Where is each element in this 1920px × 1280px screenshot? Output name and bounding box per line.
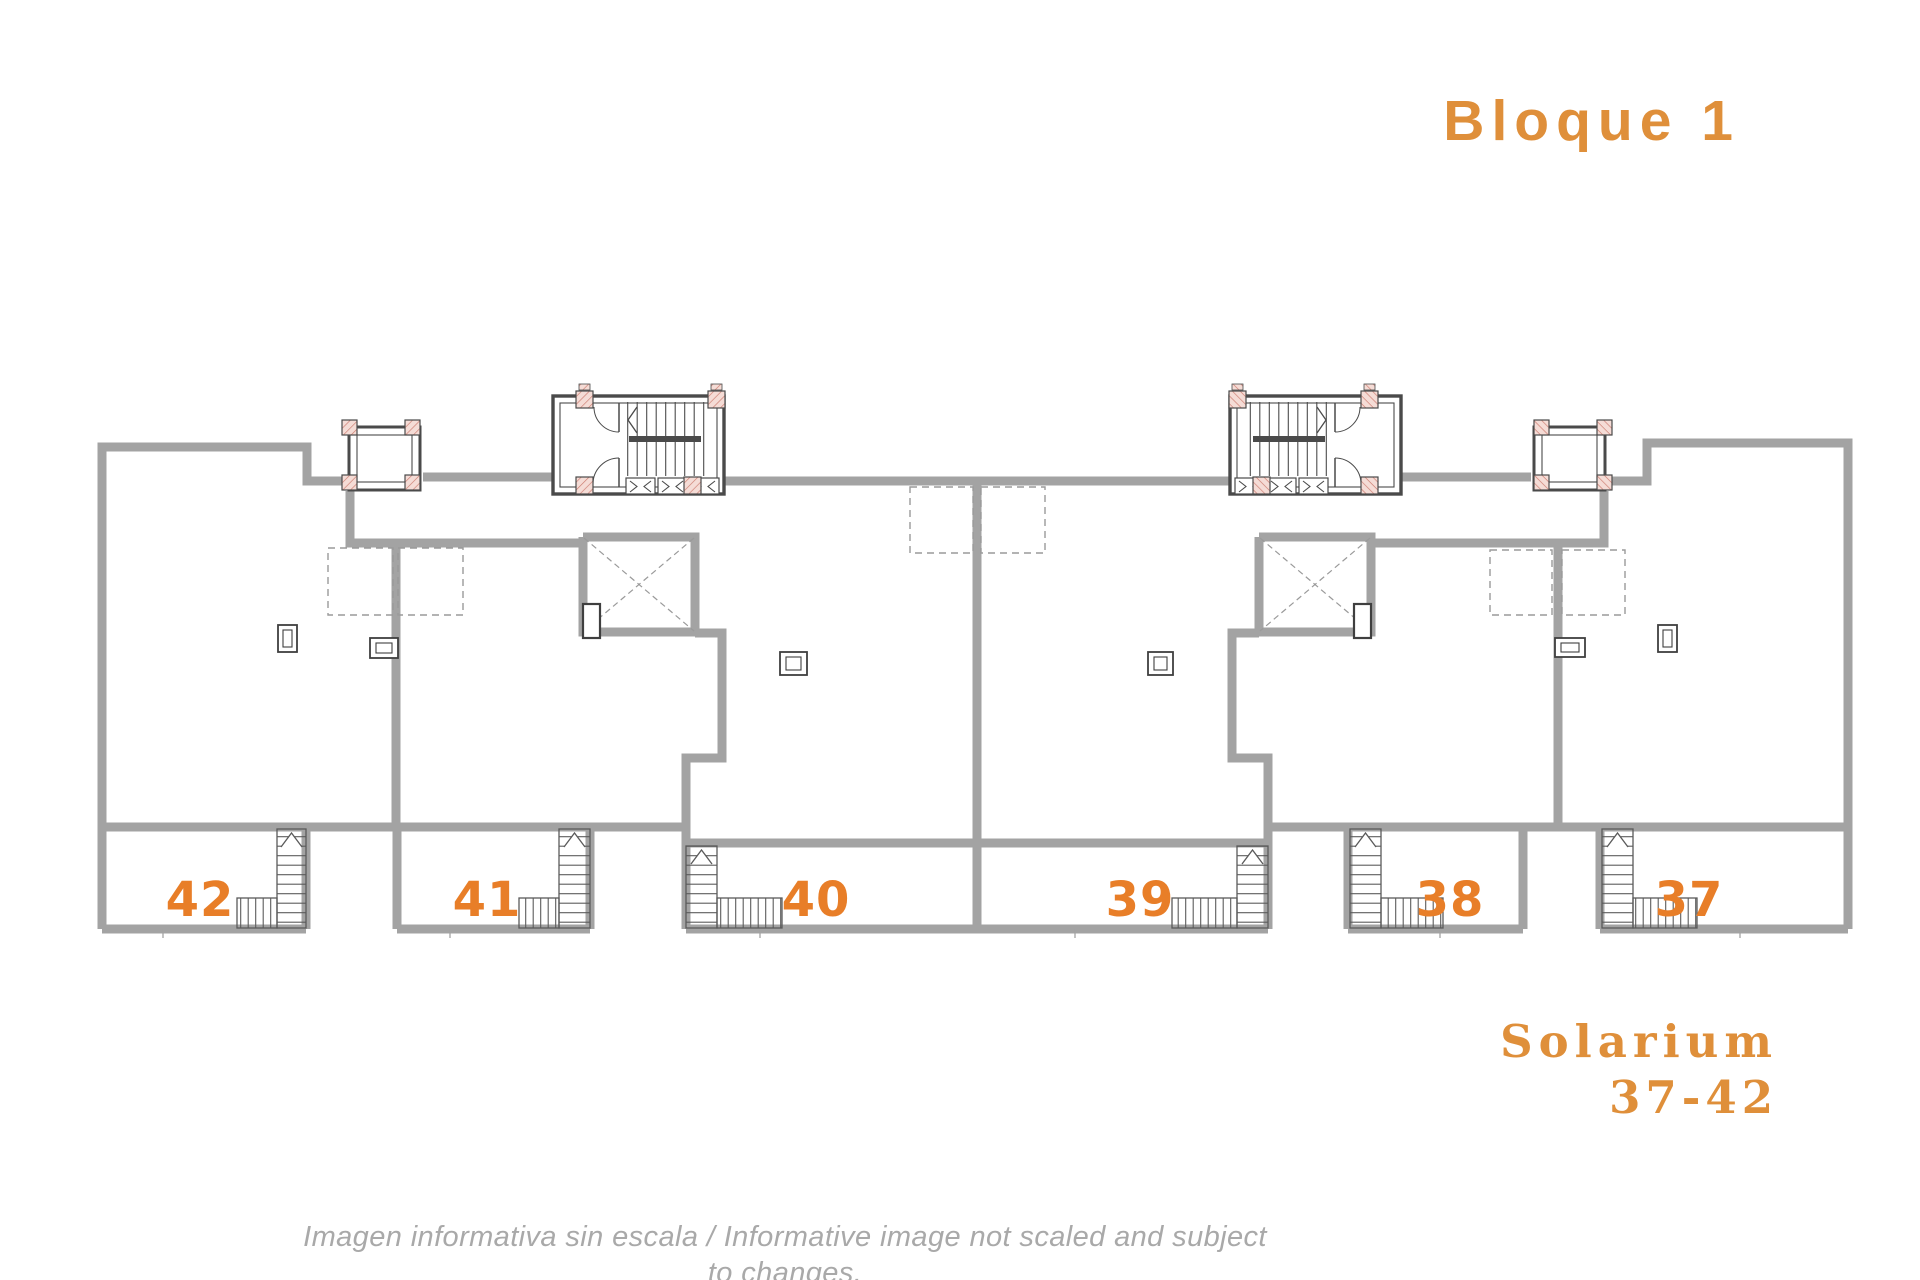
plan-caption: Solarium 37-42 — [1500, 1014, 1778, 1126]
plan-caption-line1: Solarium — [1500, 1014, 1778, 1070]
unit-number-40: 40 — [782, 872, 851, 928]
block-title: Bloque 1 — [1443, 88, 1740, 154]
unit-number-37: 37 — [1655, 872, 1724, 928]
plan-caption-line2: 37-42 — [1500, 1070, 1778, 1126]
walls — [102, 443, 1848, 929]
disclaimer: Imagen informativa sin escala / Informat… — [295, 1220, 1275, 1280]
unit-number-38: 38 — [1416, 872, 1485, 928]
unit-number-42: 42 — [166, 872, 235, 928]
page: Bloque 1 42 41 40 39 38 37 Solarium 37-4… — [0, 0, 1920, 1280]
unit-number-41: 41 — [453, 872, 522, 928]
unit-number-39: 39 — [1106, 872, 1175, 928]
disclaimer-line1: Imagen informativa sin escala / Informat… — [295, 1220, 1275, 1280]
